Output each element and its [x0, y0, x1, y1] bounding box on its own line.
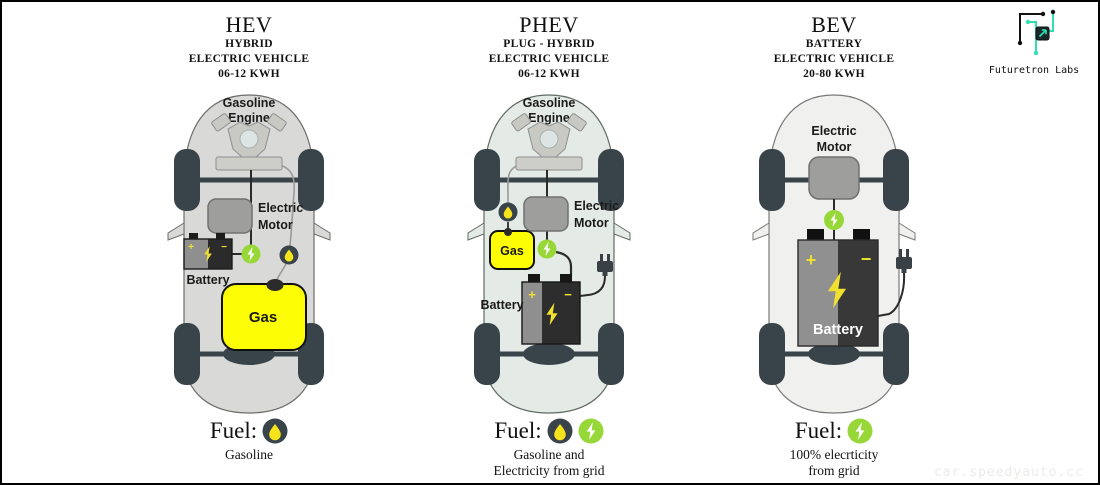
bev-fuel-row: Fuel:: [669, 416, 999, 446]
phev-subtitle-line3: 06-12 KWH: [384, 67, 714, 82]
battery-minus: −: [564, 287, 572, 302]
wheel: [474, 323, 500, 385]
bev-fuel-label: Fuel:: [795, 418, 842, 444]
phev-subtitle-line2: ELECTRIC VEHICLE: [384, 52, 714, 67]
gas-cap: [267, 279, 284, 291]
electric-motor-icon: [809, 157, 859, 199]
electricity-bolt-icon: [847, 418, 873, 444]
futuretron-labs-logo: Futuretron Labs: [978, 8, 1090, 76]
column-hev: HEV HYBRID ELECTRIC VEHICLE 06-12 KWH Ga…: [84, 2, 414, 463]
left-mirror: [468, 223, 484, 240]
motor-label-line1: Electric: [258, 201, 303, 215]
right-mirror: [314, 223, 330, 240]
phev-fuel-row: Fuel:: [384, 416, 714, 446]
phev-caption-line1: Gasoline and: [384, 447, 714, 463]
wheel: [174, 323, 200, 385]
hev-fuel-row: Fuel:: [84, 416, 414, 446]
right-mirror: [614, 223, 630, 240]
hev-car-diagram: Gasoline Engine Electric Motor: [164, 83, 334, 415]
phev-caption-line2: Electricity from grid: [384, 463, 714, 479]
watermark-text: car.speedyauto.cc: [934, 465, 1084, 480]
engine-label-line1: Gasoline: [223, 96, 276, 110]
gasoline-drop-icon: [499, 203, 518, 222]
left-mirror: [168, 223, 184, 240]
bev-subtitle-line3: 20-80 KWH: [669, 67, 999, 82]
wheel: [174, 149, 200, 211]
electricity-bolt-icon: [824, 210, 844, 230]
bev-caption-line1: 100% elecrticity: [669, 447, 999, 463]
hev-title: HEV: [84, 12, 414, 37]
gas-label: Gas: [249, 309, 277, 326]
wheel: [598, 323, 624, 385]
electricity-bolt-icon: [242, 245, 261, 264]
battery-icon: + −: [184, 233, 232, 269]
battery-minus: −: [221, 242, 227, 253]
battery-label: Battery: [186, 273, 229, 287]
bev-subtitle-line2: ELECTRIC VEHICLE: [669, 52, 999, 67]
bev-subtitle-line1: BATTERY: [669, 37, 999, 52]
battery-label: Battery: [813, 322, 863, 338]
hev-caption-line1: Gasoline: [84, 447, 414, 463]
battery-icon: + − Battery: [798, 229, 878, 346]
column-bev: BEV BATTERY ELECTRIC VEHICLE 20-80 KWH E…: [669, 2, 999, 479]
phev-subtitle-line1: PLUG - HYBRID: [384, 37, 714, 52]
logo-text: Futuretron Labs: [978, 65, 1090, 76]
gasoline-drop-icon: [262, 418, 288, 444]
electricity-bolt-icon: [578, 418, 604, 444]
battery-icon: + −: [522, 274, 580, 344]
bev-title: BEV: [669, 12, 999, 37]
engine-label-line2: Engine: [228, 111, 270, 125]
hev-subtitle-line2: ELECTRIC VEHICLE: [84, 52, 414, 67]
engine-label-line2: Engine: [528, 111, 570, 125]
gas-label: Gas: [500, 244, 524, 258]
engine-label-line1: Gasoline: [523, 96, 576, 110]
battery-plus: +: [188, 242, 194, 253]
battery-label: Battery: [480, 298, 523, 312]
electric-motor-icon: [208, 199, 252, 233]
left-mirror: [753, 223, 769, 240]
infographic-ev-comparison: HEV HYBRID ELECTRIC VEHICLE 06-12 KWH Ga…: [0, 0, 1100, 485]
motor-label-line2: Motor: [258, 218, 293, 232]
hev-subtitle-line1: HYBRID: [84, 37, 414, 52]
phev-car-diagram: Gasoline Engine Gas: [464, 83, 634, 415]
right-mirror: [899, 223, 915, 240]
wheel: [883, 149, 909, 211]
hev-subtitle-line3: 06-12 KWH: [84, 67, 414, 82]
circuit-logo-icon: [1003, 8, 1065, 60]
battery-minus: −: [861, 249, 872, 269]
phev-fuel-label: Fuel:: [494, 418, 541, 444]
gas-cap: [504, 228, 512, 236]
wheel: [474, 149, 500, 211]
wheel: [759, 323, 785, 385]
motor-label-line1: Electric: [811, 124, 856, 138]
battery-plus: +: [528, 287, 536, 302]
motor-label-line1: Electric: [574, 199, 619, 213]
battery-plus: +: [806, 250, 817, 270]
electricity-bolt-icon: [538, 240, 557, 259]
bev-car-diagram: Electric Motor: [749, 83, 919, 415]
column-phev: PHEV PLUG - HYBRID ELECTRIC VEHICLE 06-1…: [384, 2, 714, 479]
motor-label-line2: Motor: [817, 140, 852, 154]
electric-motor-icon: [524, 197, 568, 231]
differential: [523, 343, 575, 365]
phev-title: PHEV: [384, 12, 714, 37]
gasoline-drop-icon: [547, 418, 573, 444]
wheel: [883, 323, 909, 385]
motor-label-line2: Motor: [574, 216, 609, 230]
gasoline-drop-icon: [280, 246, 299, 265]
hev-fuel-label: Fuel:: [210, 418, 257, 444]
wheel: [759, 149, 785, 211]
